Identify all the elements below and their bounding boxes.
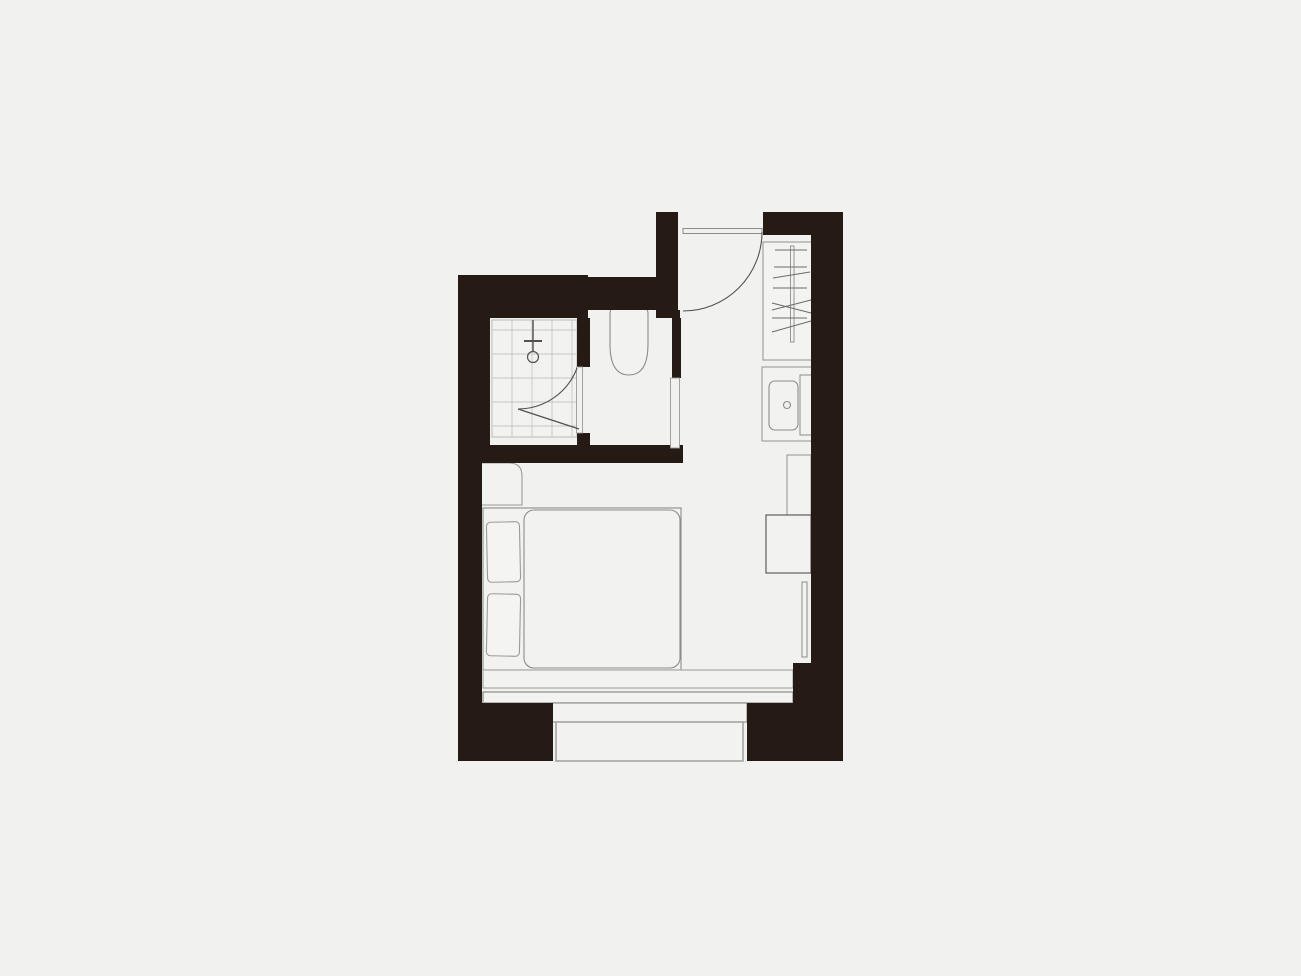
shower-door-swing-arc [518,368,577,409]
doors-layer [455,210,845,763]
wc-door-frame [671,378,680,448]
entry-door-swing-arc [683,232,762,311]
floor-plan [455,210,845,763]
shower-door [518,367,583,433]
shower-door-leaf [518,409,579,429]
entry-door [683,229,762,312]
